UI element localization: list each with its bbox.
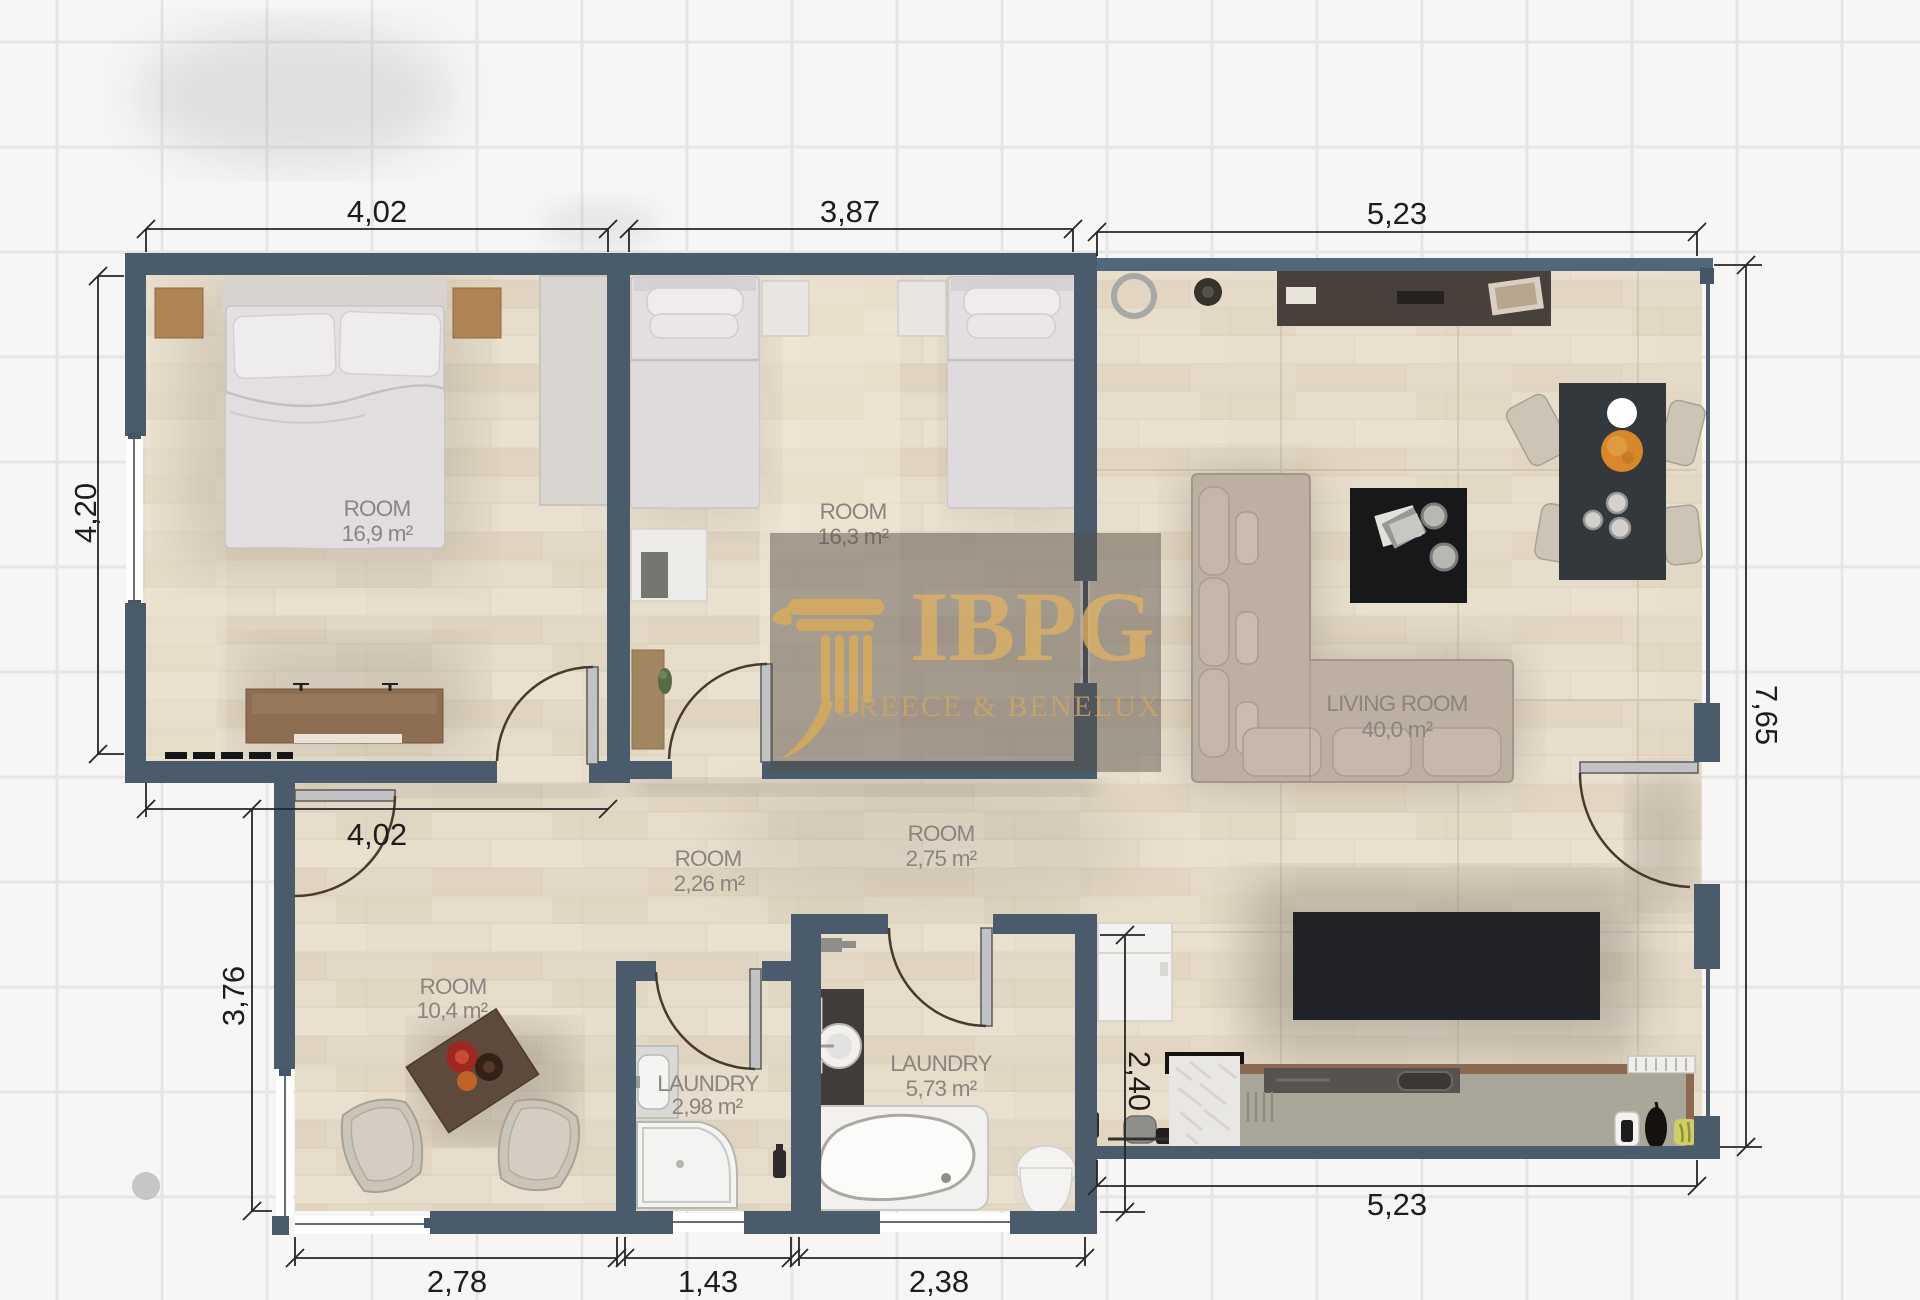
svg-text:LIVING ROOM: LIVING ROOM <box>1326 691 1467 716</box>
svg-text:40,0 m²: 40,0 m² <box>1362 717 1434 742</box>
svg-text:3,76: 3,76 <box>216 966 251 1026</box>
svg-text:LAUNDRY: LAUNDRY <box>890 1051 992 1076</box>
svg-text:ROOM: ROOM <box>420 974 487 999</box>
svg-text:ROOM: ROOM <box>344 496 411 521</box>
svg-text:3,87: 3,87 <box>820 194 880 229</box>
svg-text:5,73 m²: 5,73 m² <box>906 1076 978 1101</box>
svg-text:2,26 m²: 2,26 m² <box>674 871 746 896</box>
svg-text:5,23: 5,23 <box>1367 1187 1427 1222</box>
svg-text:1,43: 1,43 <box>678 1264 738 1299</box>
svg-text:4,20: 4,20 <box>68 483 103 543</box>
svg-text:ROOM: ROOM <box>675 846 742 871</box>
svg-text:ROOM: ROOM <box>908 821 975 846</box>
svg-text:GREECE & BENELUX: GREECE & BENELUX <box>835 690 1162 723</box>
svg-text:LAUNDRY: LAUNDRY <box>657 1071 759 1096</box>
svg-text:5,23: 5,23 <box>1367 196 1427 231</box>
svg-text:2,98 m²: 2,98 m² <box>672 1094 744 1119</box>
svg-text:2,38: 2,38 <box>909 1264 969 1299</box>
svg-text:ROOM: ROOM <box>820 499 887 524</box>
svg-text:10,4 m²: 10,4 m² <box>417 998 489 1023</box>
svg-text:4,02: 4,02 <box>347 194 407 229</box>
svg-text:4,02: 4,02 <box>347 817 407 852</box>
svg-text:2,78: 2,78 <box>427 1264 487 1299</box>
svg-text:2,40: 2,40 <box>1122 1051 1157 1111</box>
svg-text:2,75 m²: 2,75 m² <box>906 846 978 871</box>
svg-text:7,65: 7,65 <box>1749 685 1784 745</box>
svg-text:IBPG: IBPG <box>910 571 1154 682</box>
svg-text:16,9 m²: 16,9 m² <box>342 521 414 546</box>
